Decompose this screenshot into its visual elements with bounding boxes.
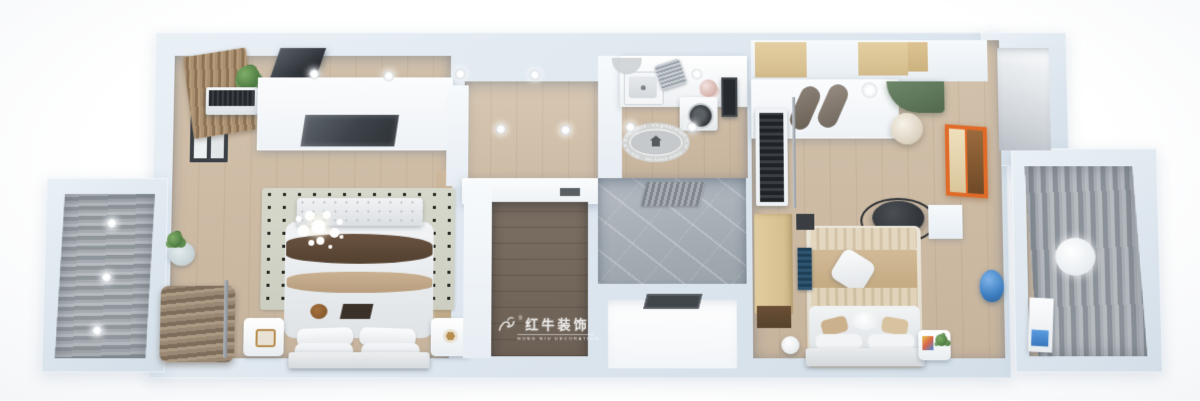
downlight: [384, 72, 393, 81]
wardrobe-wood-panel: [858, 42, 908, 75]
bed-headboard: [288, 352, 429, 368]
bed-tablet: [340, 304, 374, 319]
bull-logo-icon: [497, 314, 515, 332]
apartment-3d-floorplan: a great place it is · enjoy every life ·…: [0, 3, 1200, 401]
table-plant: [935, 334, 947, 346]
fridge-panel: [721, 77, 737, 116]
watermark-brand: 红牛装饰: [525, 314, 589, 333]
painting-canvas: [949, 128, 966, 192]
abstract-painting: [945, 124, 988, 198]
kitchen-left-cabinet: [598, 56, 622, 178]
bed2-cushion: [851, 312, 881, 330]
wardrobe-wood-panel: [908, 42, 928, 71]
downlight: [692, 70, 701, 79]
hall-vent: [560, 188, 580, 196]
bathroom-vent: [641, 182, 705, 206]
nightstand: [243, 318, 284, 356]
wardrobe-wood-panel: [755, 42, 807, 77]
side-wardrobe-dark-section: [757, 306, 791, 328]
downlight: [530, 71, 539, 80]
ceiling-panel-light: [300, 115, 399, 147]
bed-tray: [310, 304, 327, 319]
closet-left-wall: [463, 186, 492, 358]
nightstand-tray: [255, 329, 275, 347]
blue-vase: [979, 270, 1004, 302]
downlight: [688, 123, 697, 132]
entry-floor: [608, 300, 737, 368]
round-pendant-disc: [1055, 238, 1096, 276]
easel-canvas-blue: [1031, 330, 1049, 347]
bed-runner-tan: [286, 272, 432, 293]
photo-card: [922, 336, 933, 350]
downlight: [863, 83, 877, 97]
downlight: [626, 123, 635, 132]
second-bed: [806, 226, 922, 369]
easel: [1028, 297, 1054, 353]
watermark-tagline: HONG NIU DECORATION: [517, 334, 594, 341]
flower-vase: [699, 79, 717, 97]
nightstand-tray: [443, 329, 458, 343]
bedside-dark-box: [796, 214, 814, 230]
watermark: ® 红牛装饰 HONG NIU DECORATION: [497, 314, 594, 354]
painting-canvas: [967, 130, 984, 194]
registered-mark: ®: [518, 315, 522, 321]
bed2-footboard-cushion: [810, 228, 917, 250]
downlight: [496, 125, 505, 134]
sink-drain: [641, 85, 646, 90]
bed2-pillow: [815, 334, 862, 349]
bubble-chandelier: [311, 220, 325, 234]
blue-radiator-panel: [798, 248, 812, 290]
bed2-headboard: [806, 348, 925, 366]
rattan-pendant-lamp: [891, 113, 923, 145]
entry-doormat: [643, 294, 702, 309]
bedside-table: [918, 330, 951, 360]
downlight: [456, 70, 465, 79]
top-right-room-floor: [997, 48, 1051, 150]
corridor-partition-wall: [446, 85, 469, 186]
downlight: [561, 126, 570, 135]
radiator: [755, 109, 788, 206]
bed-runner-brown: [286, 234, 433, 264]
downlight: [310, 70, 319, 79]
corridor-floor: [464, 81, 600, 184]
alcove-wall-stub: [928, 205, 963, 239]
side-wardrobe: [754, 214, 793, 314]
radiator-grille: [759, 113, 784, 202]
bed2-pillow: [868, 334, 915, 349]
ac-grille: [209, 90, 255, 106]
ac-unit: [206, 87, 258, 115]
bed2-band: [811, 288, 918, 308]
master-bed: [282, 196, 435, 368]
floor-stool: [781, 336, 799, 354]
